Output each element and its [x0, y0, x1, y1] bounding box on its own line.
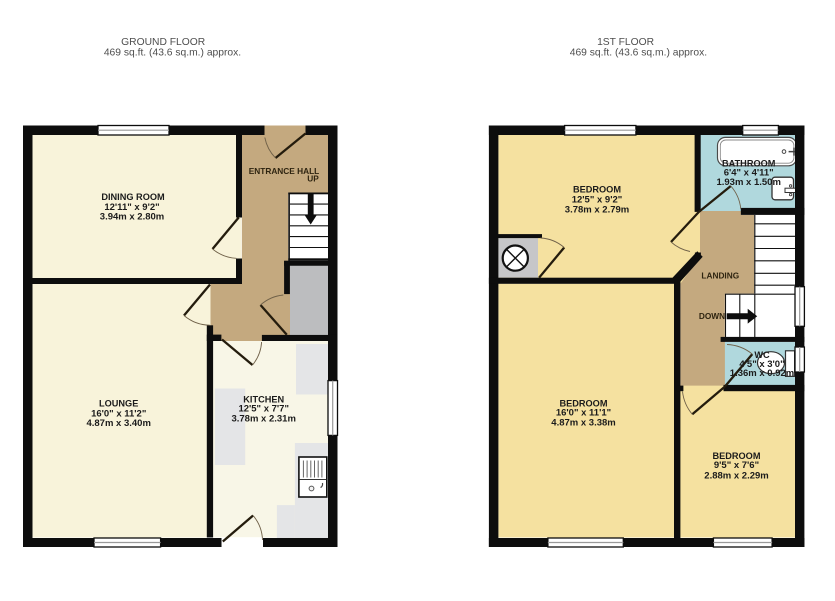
- svg-text:LOUNGE: LOUNGE: [99, 399, 138, 409]
- svg-text:3.78m x 2.31m: 3.78m x 2.31m: [231, 413, 295, 424]
- svg-text:3.94m x 2.80m: 3.94m x 2.80m: [100, 212, 164, 223]
- svg-text:4.87m x 3.38m: 4.87m x 3.38m: [551, 417, 615, 428]
- svg-text:DINING ROOM: DINING ROOM: [101, 192, 165, 202]
- svg-text:2.88m x 2.29m: 2.88m x 2.29m: [704, 471, 768, 482]
- svg-text:1.93m x 1.50m: 1.93m x 1.50m: [716, 177, 780, 188]
- svg-text:3.78m x 2.79m: 3.78m x 2.79m: [565, 204, 629, 215]
- svg-text:DOWN: DOWN: [699, 311, 725, 321]
- svg-text:4.87m x 3.40m: 4.87m x 3.40m: [86, 418, 150, 429]
- svg-text:BEDROOM: BEDROOM: [573, 185, 621, 195]
- svg-text:469 sq.ft. (43.6 sq.m.) approx: 469 sq.ft. (43.6 sq.m.) approx.: [570, 47, 707, 58]
- svg-text:9'5" x 7'6": 9'5" x 7'6": [714, 460, 759, 471]
- svg-text:LANDING: LANDING: [701, 271, 739, 281]
- svg-text:469 sq.ft. (43.6 sq.m.) approx: 469 sq.ft. (43.6 sq.m.) approx.: [104, 47, 241, 58]
- svg-text:1.36m x 0.92m: 1.36m x 0.92m: [730, 368, 794, 379]
- svg-text:UP: UP: [307, 173, 319, 183]
